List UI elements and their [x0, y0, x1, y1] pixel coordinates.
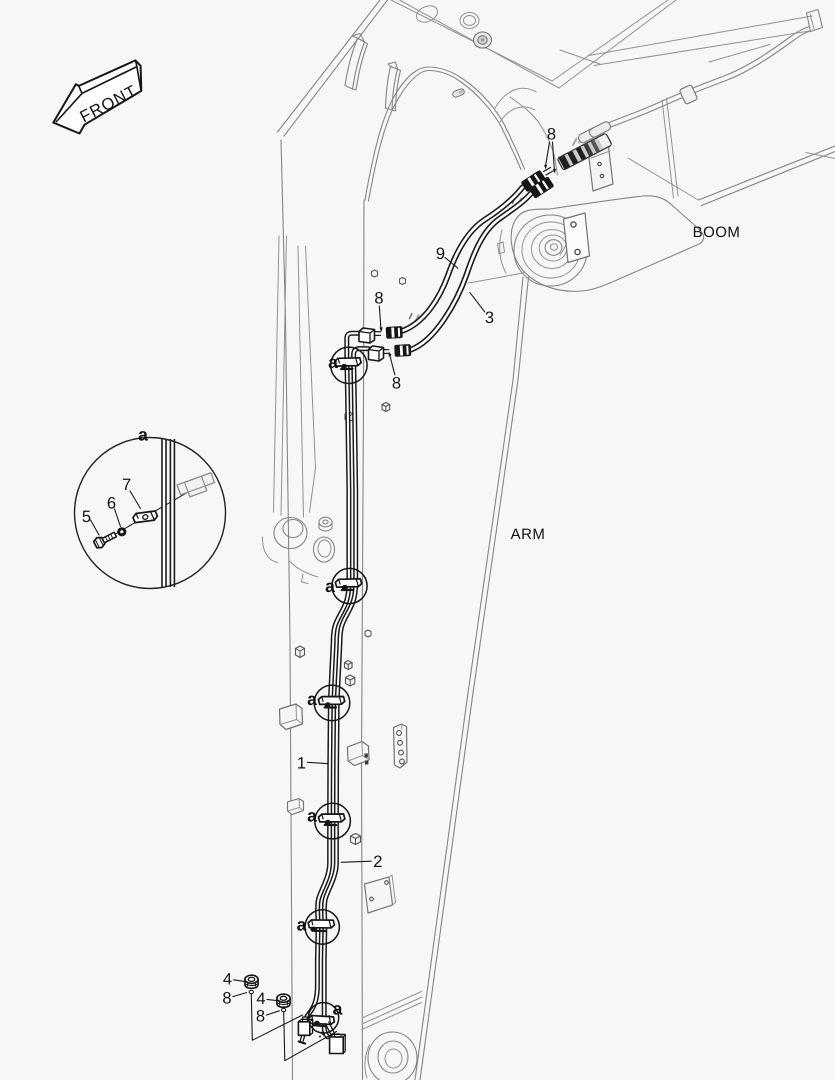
svg-text:9: 9: [436, 245, 445, 263]
svg-text:8: 8: [222, 989, 231, 1007]
svg-text:a: a: [307, 689, 317, 709]
svg-text:a: a: [325, 576, 335, 596]
svg-text:8: 8: [256, 1008, 265, 1026]
svg-text:8: 8: [547, 126, 556, 144]
svg-text:5: 5: [82, 508, 91, 526]
svg-text:3: 3: [485, 309, 494, 327]
svg-text:6: 6: [107, 495, 116, 513]
svg-text:2: 2: [373, 853, 382, 871]
svg-text:1: 1: [297, 755, 306, 773]
svg-text:4: 4: [223, 971, 232, 989]
svg-text:BOOM: BOOM: [693, 224, 741, 241]
svg-text:a: a: [328, 352, 338, 372]
svg-text:4: 4: [256, 990, 265, 1008]
svg-text:a: a: [307, 806, 317, 826]
svg-text:7: 7: [122, 476, 131, 494]
svg-text:ARM: ARM: [511, 526, 546, 543]
svg-text:a: a: [333, 999, 343, 1019]
svg-text:a: a: [138, 425, 148, 445]
svg-text:8: 8: [374, 290, 383, 308]
svg-text:8: 8: [392, 375, 401, 393]
svg-text:a: a: [297, 915, 307, 935]
